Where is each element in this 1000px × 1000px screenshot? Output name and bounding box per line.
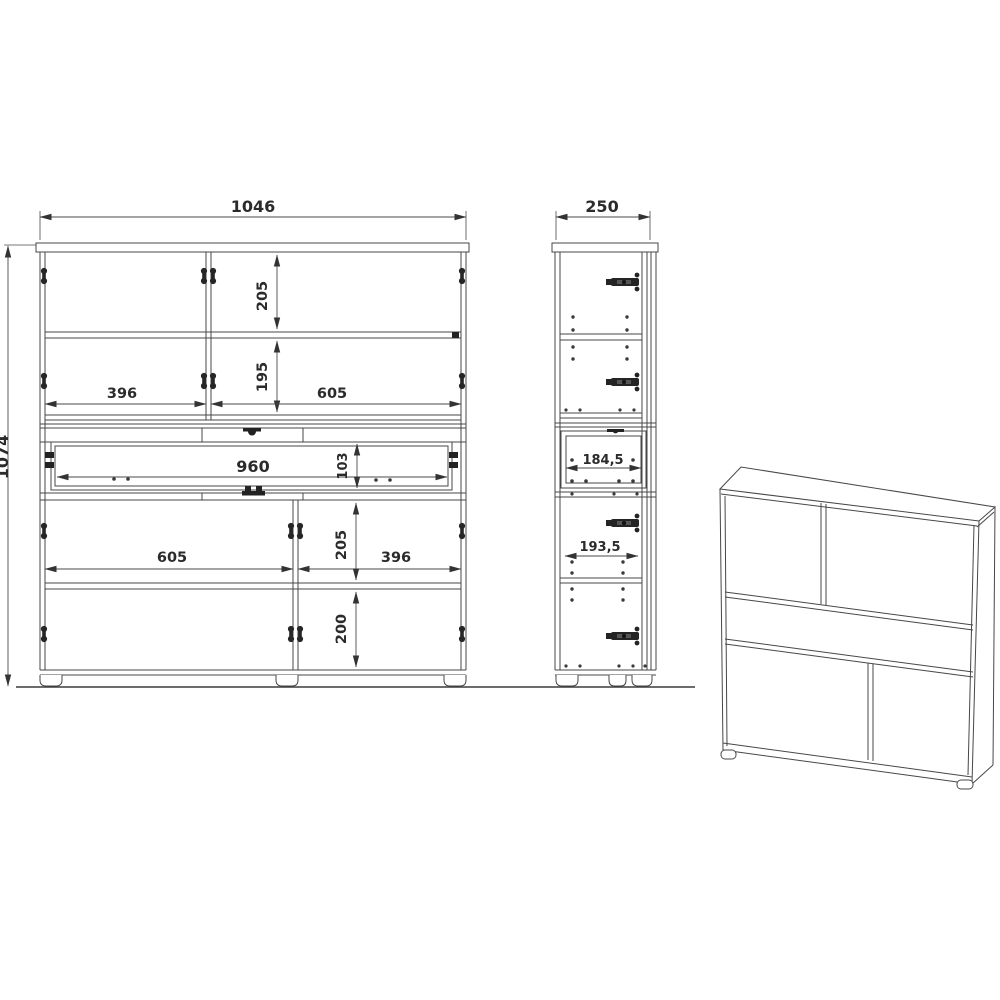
drawer-latch-icon	[242, 491, 265, 496]
dim-overall-width: 1046	[231, 197, 276, 216]
side-foot-middle	[609, 675, 626, 686]
dim-top-left-width: 396	[107, 386, 137, 402]
iso-foot-left	[721, 750, 736, 759]
dim-bottom-left-width: 605	[157, 550, 187, 566]
dim-middle-section-height: 195	[255, 362, 271, 392]
front-foot-left	[40, 675, 62, 686]
dim-bottom-lower-height: 200	[334, 614, 350, 644]
front-view: 1046 1074 205 195 396 605 960 103 605 39…	[0, 197, 469, 686]
isometric-view	[720, 467, 995, 789]
side-foot-left	[556, 675, 578, 686]
dim-bottom-right-width: 396	[381, 550, 411, 566]
dim-drawer-width: 960	[236, 457, 269, 476]
dim-bottom-section-height: 205	[334, 530, 350, 560]
side-top-panel	[552, 243, 658, 252]
iso-top-face	[720, 467, 995, 521]
technical-drawing-page: 1046 1074 205 195 396 605 960 103 605 39…	[0, 0, 1000, 1000]
dim-top-right-width: 605	[317, 386, 347, 402]
dim-drawer-height: 103	[336, 452, 351, 479]
iso-foot-right	[957, 780, 973, 789]
dim-top-section-height: 205	[255, 281, 271, 311]
dim-overall-height: 1074	[0, 435, 12, 480]
drawer-catch-icon	[243, 428, 261, 436]
dim-lower-depth: 193,5	[579, 540, 620, 555]
side-foot-right	[632, 675, 652, 686]
dim-drawer-depth: 184,5	[582, 453, 623, 468]
front-top-panel	[36, 243, 469, 252]
front-foot-right	[444, 675, 466, 686]
front-foot-middle	[276, 675, 298, 686]
dim-depth: 250	[585, 197, 618, 216]
side-view: 250 184,5 193,5	[552, 197, 658, 686]
cabinet-technical-drawing: 1046 1074 205 195 396 605 960 103 605 39…	[0, 0, 1000, 1000]
front-hinges	[41, 268, 465, 642]
